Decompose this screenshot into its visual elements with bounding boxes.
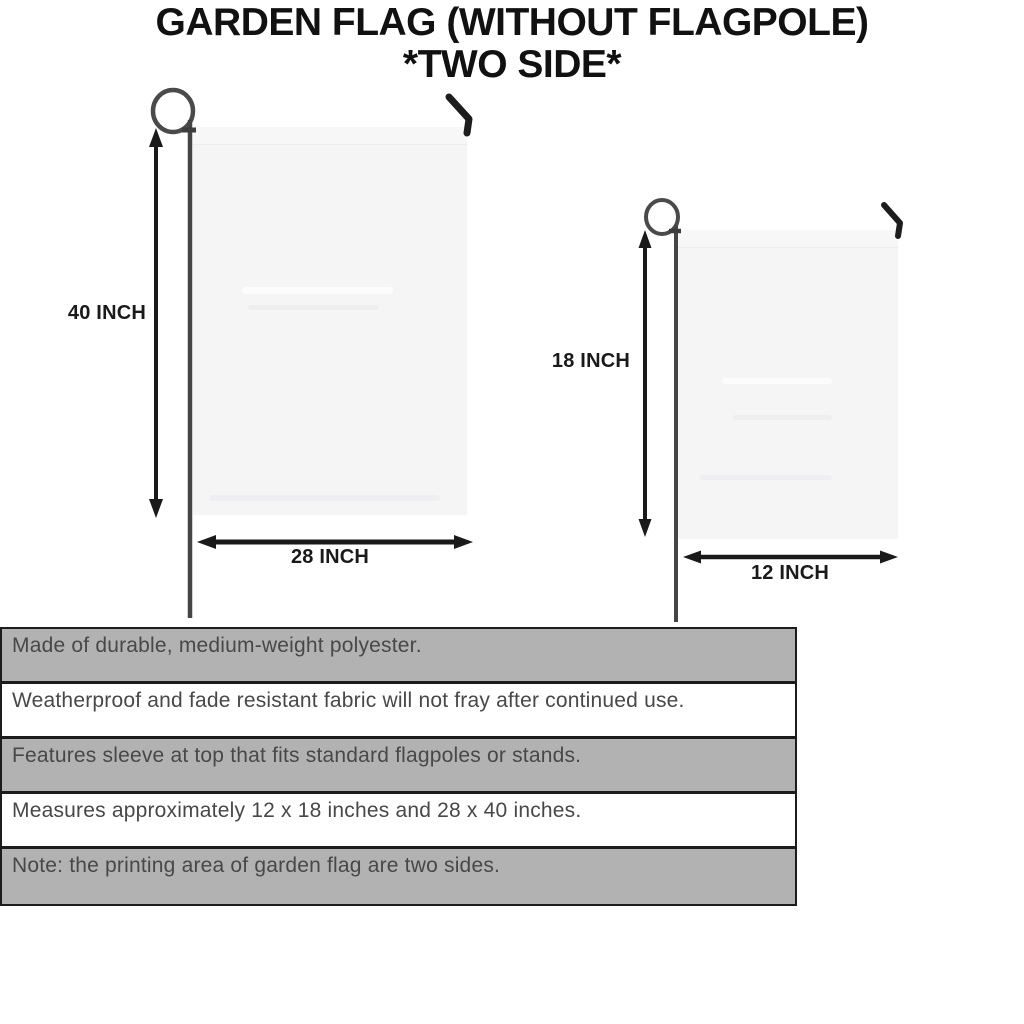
page-subtitle: *TWO SIDE* [0, 45, 1024, 84]
small-flag-pole [646, 200, 681, 622]
small-flag [678, 230, 898, 539]
feature-text: Note: the printing area of garden flag a… [12, 854, 500, 877]
fabric-fold [733, 415, 832, 420]
feature-row: Features sleeve at top that fits standar… [2, 739, 795, 794]
title-block: GARDEN FLAG (WITHOUT FLAGPOLE) *TWO SIDE… [0, 2, 1024, 84]
large-flag-sleeve [193, 127, 467, 145]
feature-text: Made of durable, medium-weight polyester… [12, 634, 422, 657]
fabric-fold [700, 475, 832, 480]
small-flag-width-label: 12 INCH [690, 562, 890, 585]
fabric-fold [242, 287, 393, 294]
large-flag [193, 127, 467, 515]
fabric-fold [209, 495, 439, 501]
garden-flag-size-chart: GARDEN FLAG (WITHOUT FLAGPOLE) *TWO SIDE… [0, 0, 1024, 1024]
large-flag-pole [153, 90, 196, 618]
feature-row: Measures approximately 12 x 18 inches an… [2, 794, 795, 849]
feature-text: Measures approximately 12 x 18 inches an… [12, 799, 581, 822]
small-flag-height-label: 18 INCH [522, 350, 630, 373]
large-flag-width-label: 28 INCH [230, 546, 430, 569]
fabric-fold [248, 305, 380, 310]
height-arrow-small [639, 230, 652, 537]
feature-row: Weatherproof and fade resistant fabric w… [2, 684, 795, 739]
large-flag-height-label: 40 INCH [38, 302, 146, 325]
small-flag-sleeve [678, 230, 898, 248]
height-arrow-large [149, 128, 163, 518]
feature-text: Weatherproof and fade resistant fabric w… [12, 689, 685, 712]
page-title: GARDEN FLAG (WITHOUT FLAGPOLE) [0, 2, 1024, 45]
feature-row: Made of durable, medium-weight polyester… [2, 629, 795, 684]
features-panel: Made of durable, medium-weight polyester… [0, 627, 797, 906]
fabric-fold [722, 378, 832, 384]
feature-row: Note: the printing area of garden flag a… [2, 849, 795, 904]
feature-text: Features sleeve at top that fits standar… [12, 744, 581, 767]
